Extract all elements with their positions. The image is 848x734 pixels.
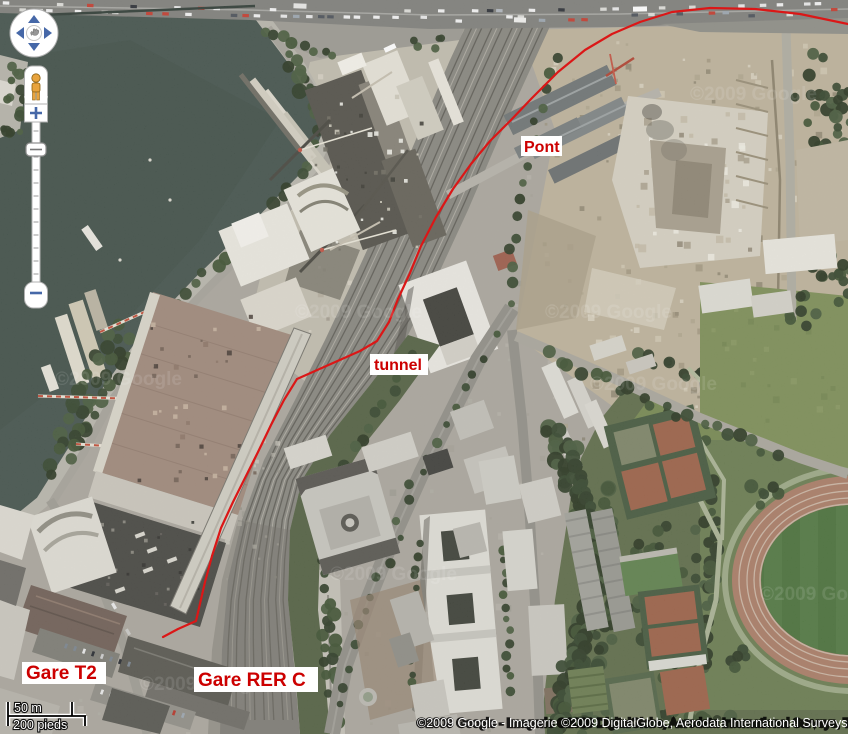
svg-text:Pont: Pont: [524, 139, 560, 156]
svg-text:©2009 Google - Imagerie ©2009: ©2009 Google - Imagerie ©2009 DigitalGlo…: [417, 716, 848, 730]
svg-text:©2009 Google: ©2009 Google: [55, 369, 182, 390]
svg-text:©2009 Google: ©2009 Google: [590, 374, 717, 395]
svg-text:©2009 Google: ©2009 Google: [545, 302, 672, 323]
svg-text:50 m: 50 m: [14, 701, 42, 715]
svg-text:©2009 Google: ©2009 Google: [295, 302, 422, 323]
svg-text:200 pieds: 200 pieds: [13, 718, 67, 732]
svg-text:©2009 Google: ©2009 Google: [690, 84, 817, 105]
svg-text:tunnel: tunnel: [374, 357, 422, 374]
svg-text:©2009 Google: ©2009 Google: [330, 564, 457, 585]
svg-text:Gare T2: Gare T2: [26, 663, 97, 684]
svg-text:©2009 Google: ©2009 Google: [760, 584, 848, 605]
svg-text:Gare RER C: Gare RER C: [198, 670, 306, 691]
